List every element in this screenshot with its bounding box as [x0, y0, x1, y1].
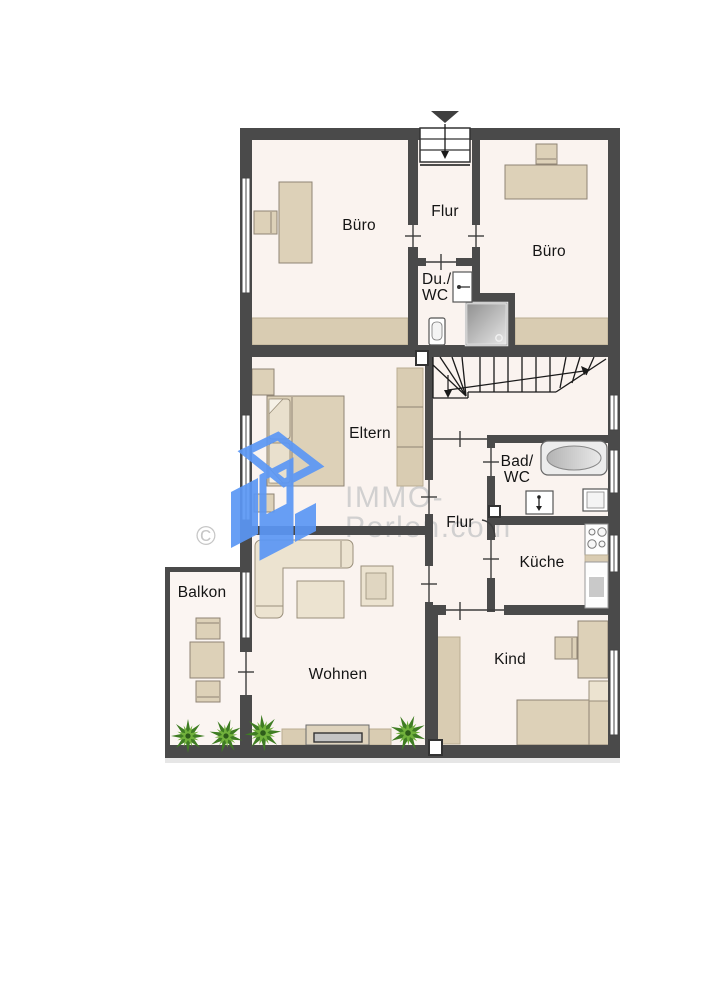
- sideboard: [515, 318, 608, 345]
- chair: [196, 681, 220, 702]
- floorplan-page: © IMMO- Perlen.com: [0, 0, 706, 1000]
- floorplan-canvas: © IMMO- Perlen.com: [0, 0, 706, 1000]
- entrance-arrow-icon: [431, 111, 459, 123]
- room-label-flur-mid: Flur: [446, 514, 474, 532]
- door-symbol: [416, 351, 428, 365]
- table: [190, 642, 224, 678]
- desk: [578, 621, 608, 678]
- room-label-kind: Kind: [494, 651, 526, 669]
- toilet: [526, 491, 553, 514]
- coffee-table: [297, 581, 344, 618]
- window: [610, 395, 618, 430]
- window: [242, 178, 250, 293]
- desk: [279, 182, 312, 263]
- room-label-buero-left: Büro: [342, 217, 376, 235]
- window: [610, 450, 618, 493]
- door-symbol: [429, 740, 442, 755]
- room-label-flur-top: Flur: [431, 203, 459, 221]
- room-label-line: WC: [422, 288, 451, 304]
- tv-screen: [314, 733, 362, 742]
- washbasin: [583, 489, 608, 511]
- room-label-du-wc: Du./ WC: [422, 272, 451, 304]
- room-label-line: WC: [501, 470, 534, 486]
- window: [610, 535, 618, 572]
- room-label-line: Du./: [422, 272, 451, 288]
- room-label-line: Bad/: [501, 454, 534, 470]
- room-label-eltern: Eltern: [349, 425, 391, 443]
- window: [610, 650, 618, 735]
- plant-icon: [171, 719, 205, 753]
- kitchen-counter: [585, 524, 608, 608]
- wardrobe: [397, 368, 423, 486]
- shower: [466, 303, 507, 345]
- door-symbol: [489, 506, 500, 517]
- chair: [196, 618, 220, 639]
- window: [242, 572, 250, 638]
- balcony-railing-top: [165, 567, 240, 572]
- room-label-bad-wc: Bad/ WC: [501, 454, 534, 486]
- office-chair: [536, 144, 557, 164]
- desk-chair: [555, 637, 577, 659]
- pillow: [589, 681, 611, 701]
- washbasin: [453, 272, 472, 302]
- nightstand: [252, 369, 274, 395]
- room-label-kueche: Küche: [520, 554, 565, 572]
- toilet: [429, 318, 445, 345]
- desk: [505, 165, 587, 199]
- room-label-buero-right: Büro: [532, 243, 566, 261]
- room-label-wohnen: Wohnen: [309, 666, 368, 684]
- office-chair: [254, 211, 277, 234]
- room-label-balkon: Balkon: [178, 584, 227, 602]
- bed: [517, 700, 611, 745]
- copyright-symbol: ©: [196, 521, 216, 551]
- sideboard: [252, 318, 408, 345]
- entrance: [420, 111, 470, 165]
- bathtub: [541, 441, 607, 475]
- kitchen-sink: [588, 576, 605, 598]
- balcony-railing-left: [165, 567, 170, 745]
